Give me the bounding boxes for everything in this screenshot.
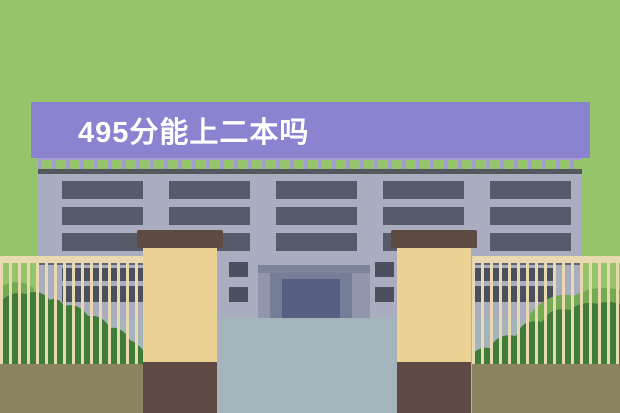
title-banner: 495分能上二本吗 <box>31 102 590 158</box>
window <box>383 181 464 199</box>
window <box>490 181 571 199</box>
entrance-lintel <box>258 265 370 273</box>
window <box>276 233 357 251</box>
window <box>383 207 464 225</box>
gate-pillar-right-cap <box>391 230 477 248</box>
window <box>490 207 571 225</box>
soil-right <box>472 364 620 413</box>
window <box>276 181 357 199</box>
window <box>375 287 394 302</box>
gate-pillar-right-base <box>397 362 471 413</box>
window <box>229 262 248 277</box>
banner-title: 495分能上二本吗 <box>78 109 309 151</box>
fence-rail-right <box>472 256 620 263</box>
window <box>62 181 143 199</box>
fence-slats-right <box>472 263 620 365</box>
gate-pillar-left-base <box>143 362 217 413</box>
fence-slats-left <box>0 263 143 365</box>
gate-pillar-right-body <box>397 248 471 362</box>
window <box>169 207 250 225</box>
window <box>62 233 143 251</box>
entrance-door <box>282 279 340 318</box>
window <box>62 207 143 225</box>
gate-pillar-left-cap <box>137 230 223 248</box>
soil-left <box>0 364 143 413</box>
window <box>375 262 394 277</box>
fence-rail-left <box>0 256 143 263</box>
gate-pillar-left-body <box>143 248 217 362</box>
window <box>276 207 357 225</box>
school-illustration: 495分能上二本吗 <box>0 0 620 413</box>
window <box>169 181 250 199</box>
window <box>229 287 248 302</box>
window <box>490 233 571 251</box>
